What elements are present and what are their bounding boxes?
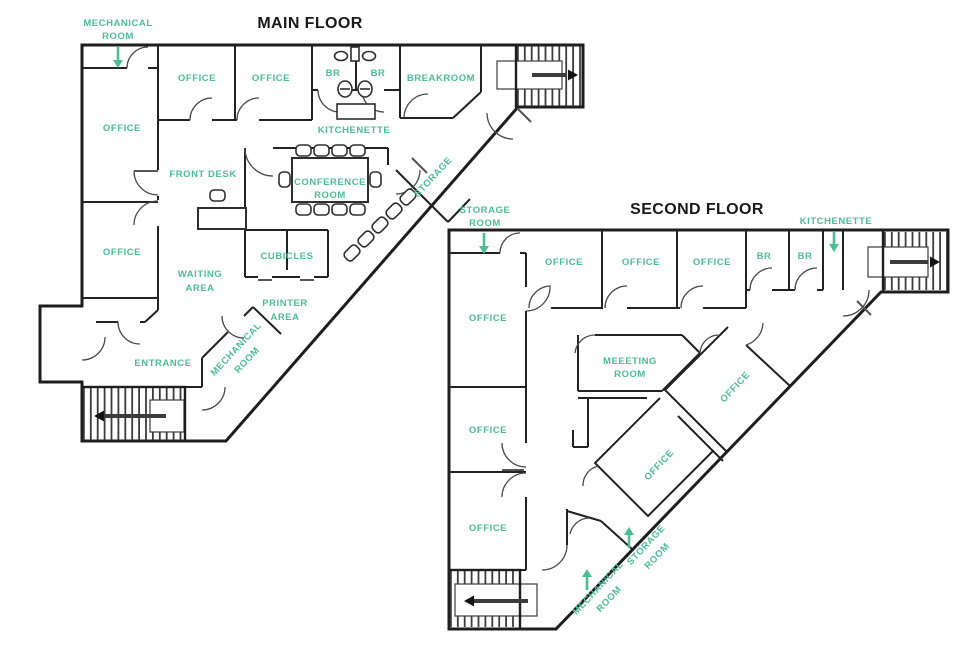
- main-floor-title: MAIN FLOOR: [257, 15, 362, 32]
- room-label-waiting-area: AREA: [185, 283, 214, 294]
- second-door-arcs: [500, 233, 871, 570]
- room-label-printer-area: AREA: [270, 312, 299, 323]
- room-label-cubicles: CUBICLES: [261, 251, 314, 262]
- stairs-direction-arrow-left: [94, 411, 104, 422]
- room-label-meeting-room: MEEETING: [603, 356, 657, 367]
- room-label-office: OFFICE: [469, 523, 507, 534]
- sink: [363, 52, 376, 61]
- room-label-conference-room: ROOM: [314, 190, 346, 201]
- reception-desk: [198, 208, 246, 229]
- main-stairs-lower-left: [82, 387, 185, 441]
- arrow-mechanical-room-top: [113, 47, 123, 68]
- sink: [335, 52, 348, 61]
- room-label-kitchenette: KITCHENETTE: [800, 216, 873, 227]
- room-label-front-desk: FRONT DESK: [169, 169, 236, 180]
- room-label-office: OFFICE: [469, 425, 507, 436]
- room-label-office: OFFICE: [103, 123, 141, 134]
- br-partition: [351, 47, 359, 61]
- room-label-entrance: ENTRANCE: [134, 358, 191, 369]
- room-label-br: BR: [798, 251, 813, 262]
- second-stairs-lower-left: [449, 570, 537, 629]
- room-label-office: OFFICE: [103, 247, 141, 258]
- room-label-br: BR: [326, 68, 341, 79]
- second-floor-title: SECOND FLOOR: [630, 201, 764, 218]
- main-floor-plan: MAIN FLOOR: [40, 15, 583, 441]
- main-labels: MECHANICAL ROOM OFFICE OFFICE OFFICE OFF…: [83, 18, 475, 378]
- room-label-breakroom: BREAKROOM: [407, 73, 475, 84]
- room-label-office: OFFICE: [178, 73, 216, 84]
- main-arrows: [113, 47, 123, 68]
- room-label-conference-room: CONFERENCE: [294, 177, 366, 188]
- room-label-storage-room: STORAGE: [460, 205, 511, 216]
- room-label-br: BR: [371, 68, 386, 79]
- arrow-kitchenette: [829, 231, 839, 252]
- arrow-storage-room-top: [479, 233, 489, 254]
- room-label-office: OFFICE: [718, 370, 752, 405]
- main-stairs-upper-right: [497, 45, 583, 107]
- second-labels: STORAGE ROOM OFFICE OFFICE OFFICE OFFICE…: [460, 205, 873, 617]
- room-label-printer-area: PRINTER: [262, 298, 308, 309]
- second-interior-walls: [449, 230, 883, 570]
- arrow-storage-room-diag: [624, 527, 634, 548]
- room-label-office: OFFICE: [622, 257, 660, 268]
- room-label-br: BR: [757, 251, 772, 262]
- room-label-mechanical-room: MECHANICAL: [83, 18, 152, 29]
- room-label-mechanical-room: ROOM: [102, 31, 134, 42]
- second-stairs-upper-right: [868, 230, 948, 292]
- room-label-office: OFFICE: [252, 73, 290, 84]
- reception-chair: [210, 190, 225, 201]
- stairs-direction-arrow-right: [930, 257, 940, 268]
- floor-plan-canvas: MAIN FLOOR: [0, 0, 961, 656]
- room-label-office: OFFICE: [642, 448, 676, 483]
- kitchen-counter: [337, 104, 375, 119]
- arrow-mechanical-room-diag: [582, 569, 592, 590]
- room-label-waiting-area: WAITING: [178, 269, 223, 280]
- room-label-office: OFFICE: [693, 257, 731, 268]
- room-label-kitchenette: KITCHENETTE: [318, 125, 391, 136]
- room-label-meeting-room: ROOM: [614, 369, 646, 380]
- room-label-office: OFFICE: [545, 257, 583, 268]
- second-floor-plan: SECOND FLOOR: [449, 201, 948, 629]
- room-label-office: OFFICE: [469, 313, 507, 324]
- room-label-storage-room: ROOM: [469, 218, 501, 229]
